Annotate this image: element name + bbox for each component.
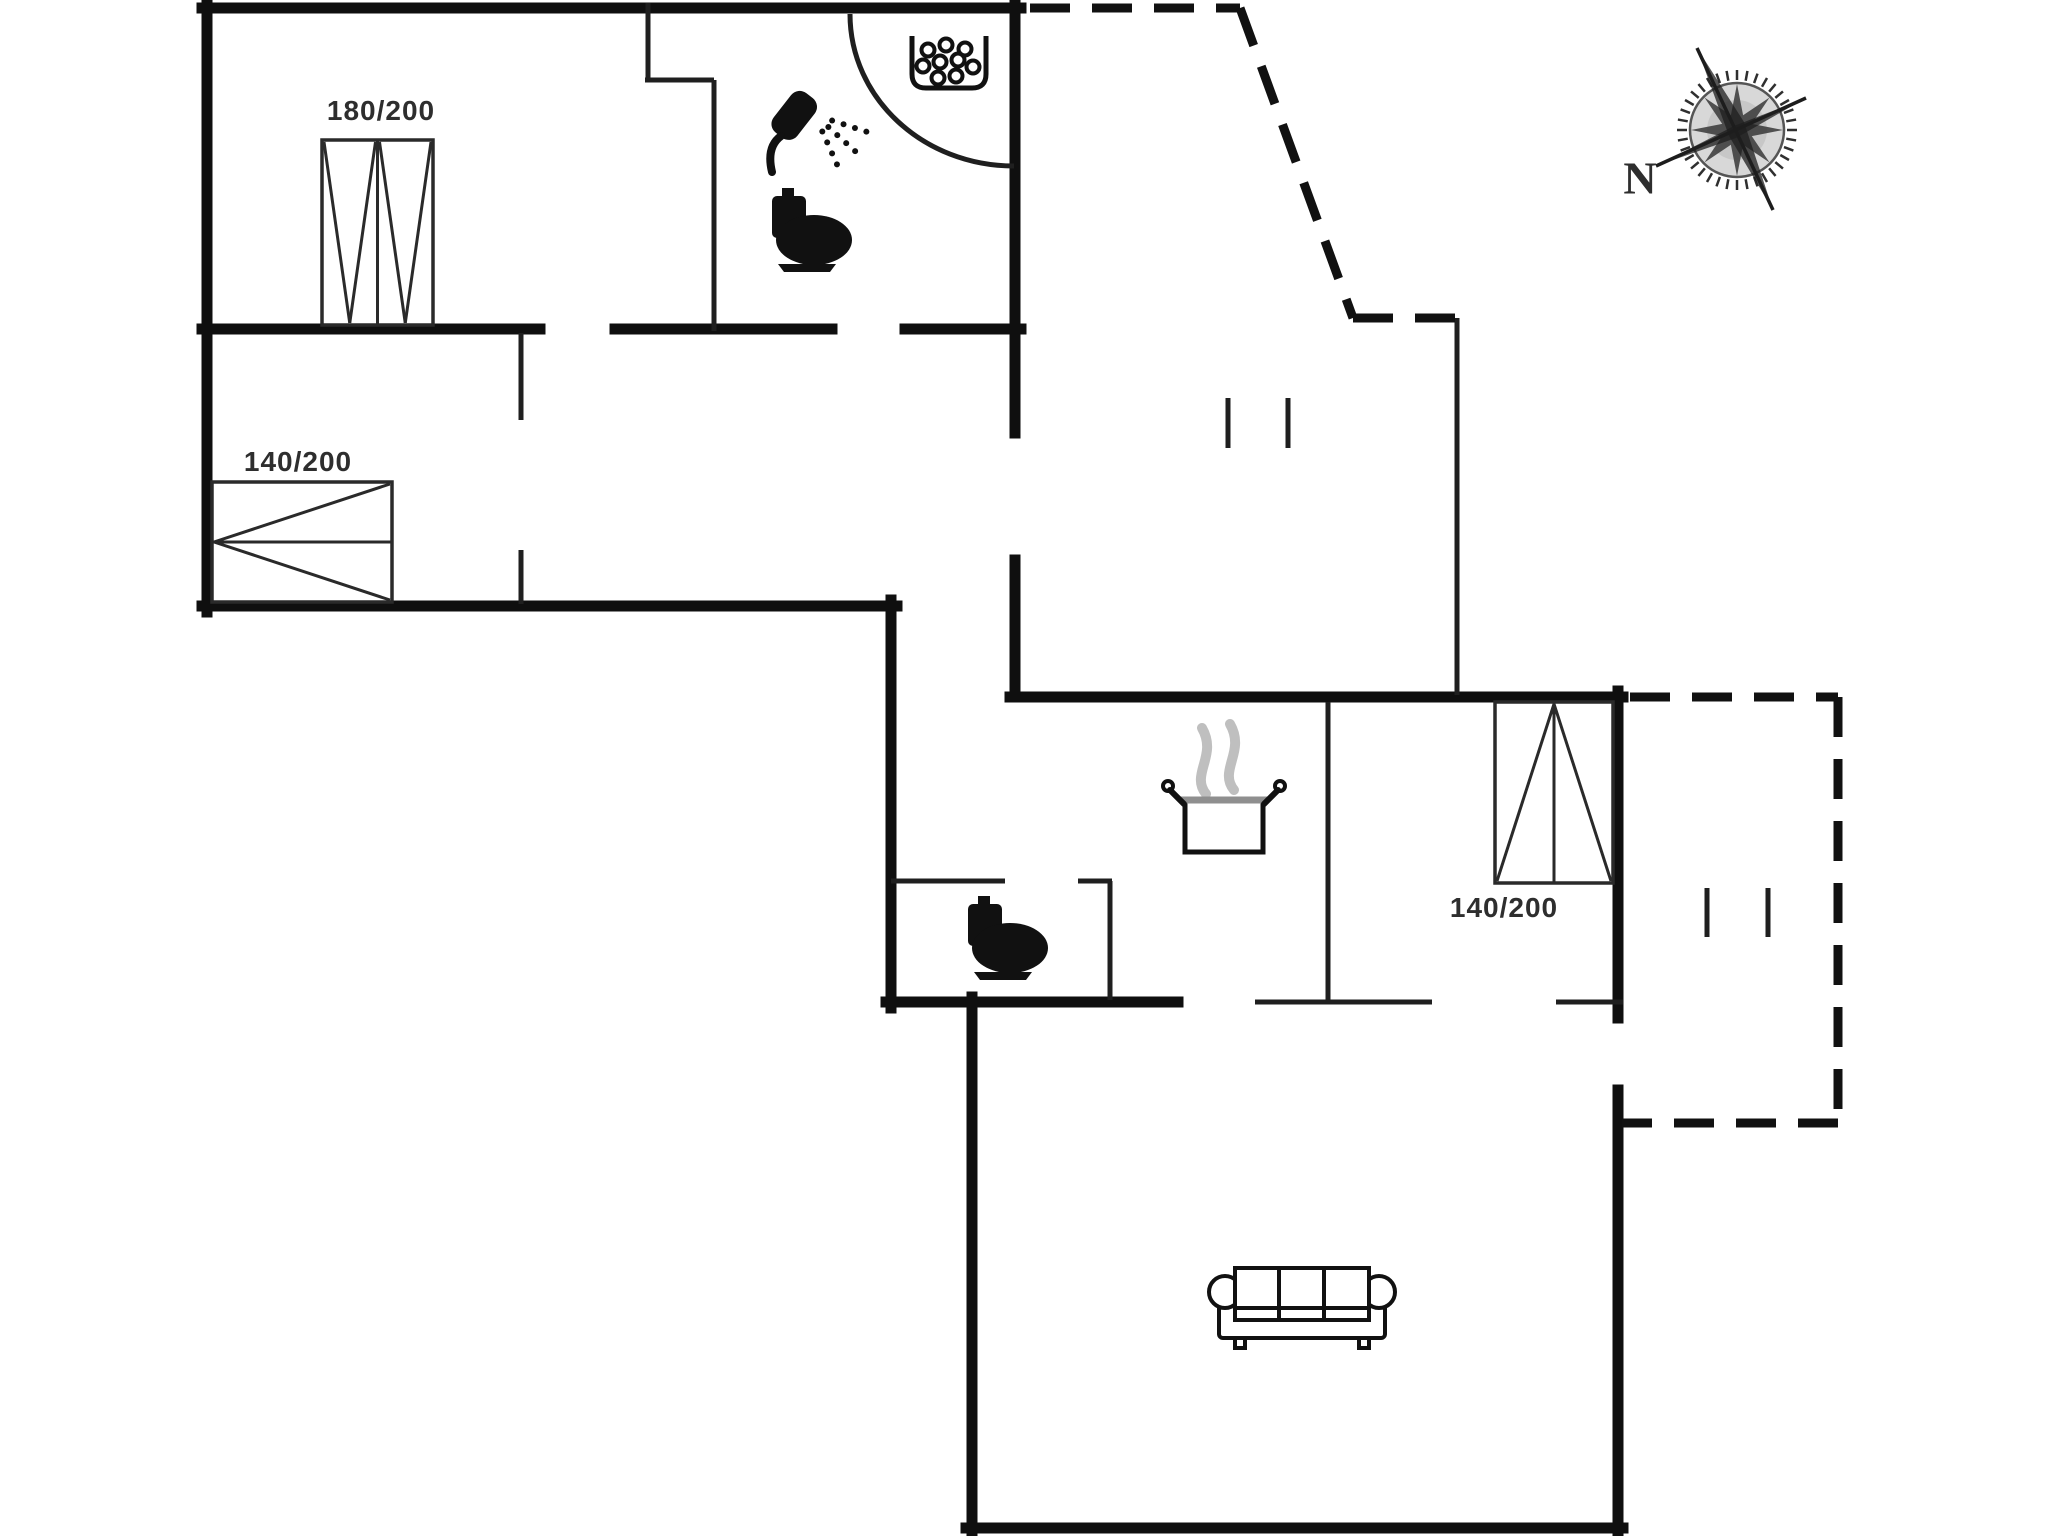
interior-walls: [521, 3, 1623, 1002]
beds: [212, 140, 1613, 883]
bed-140x200-left: [212, 482, 392, 602]
bed-size-label: 140/200: [1450, 892, 1558, 924]
compass-north-label: N: [1623, 152, 1656, 205]
compass-rose-icon: [1656, 48, 1806, 210]
bed-size-label: 140/200: [244, 446, 352, 478]
cooking-pot-icon: [1163, 724, 1285, 852]
floor-plan: 180/200 140/200 140/200 N: [0, 0, 2048, 1536]
bed-180x200: [322, 140, 433, 325]
floor-plan-drawing: [0, 0, 2048, 1536]
toilet-icon: [772, 188, 852, 272]
spa-bubbles-icon: [912, 36, 986, 88]
bed-size-label: 180/200: [327, 95, 435, 127]
bed-140x200-right: [1495, 702, 1613, 883]
toilet-icon: [968, 896, 1048, 980]
sofa-icon: [1209, 1268, 1395, 1348]
terrace-dashed-line: [1240, 8, 1353, 318]
terrace-boundaries: [1030, 8, 1838, 1123]
shower-icon: [767, 86, 869, 172]
